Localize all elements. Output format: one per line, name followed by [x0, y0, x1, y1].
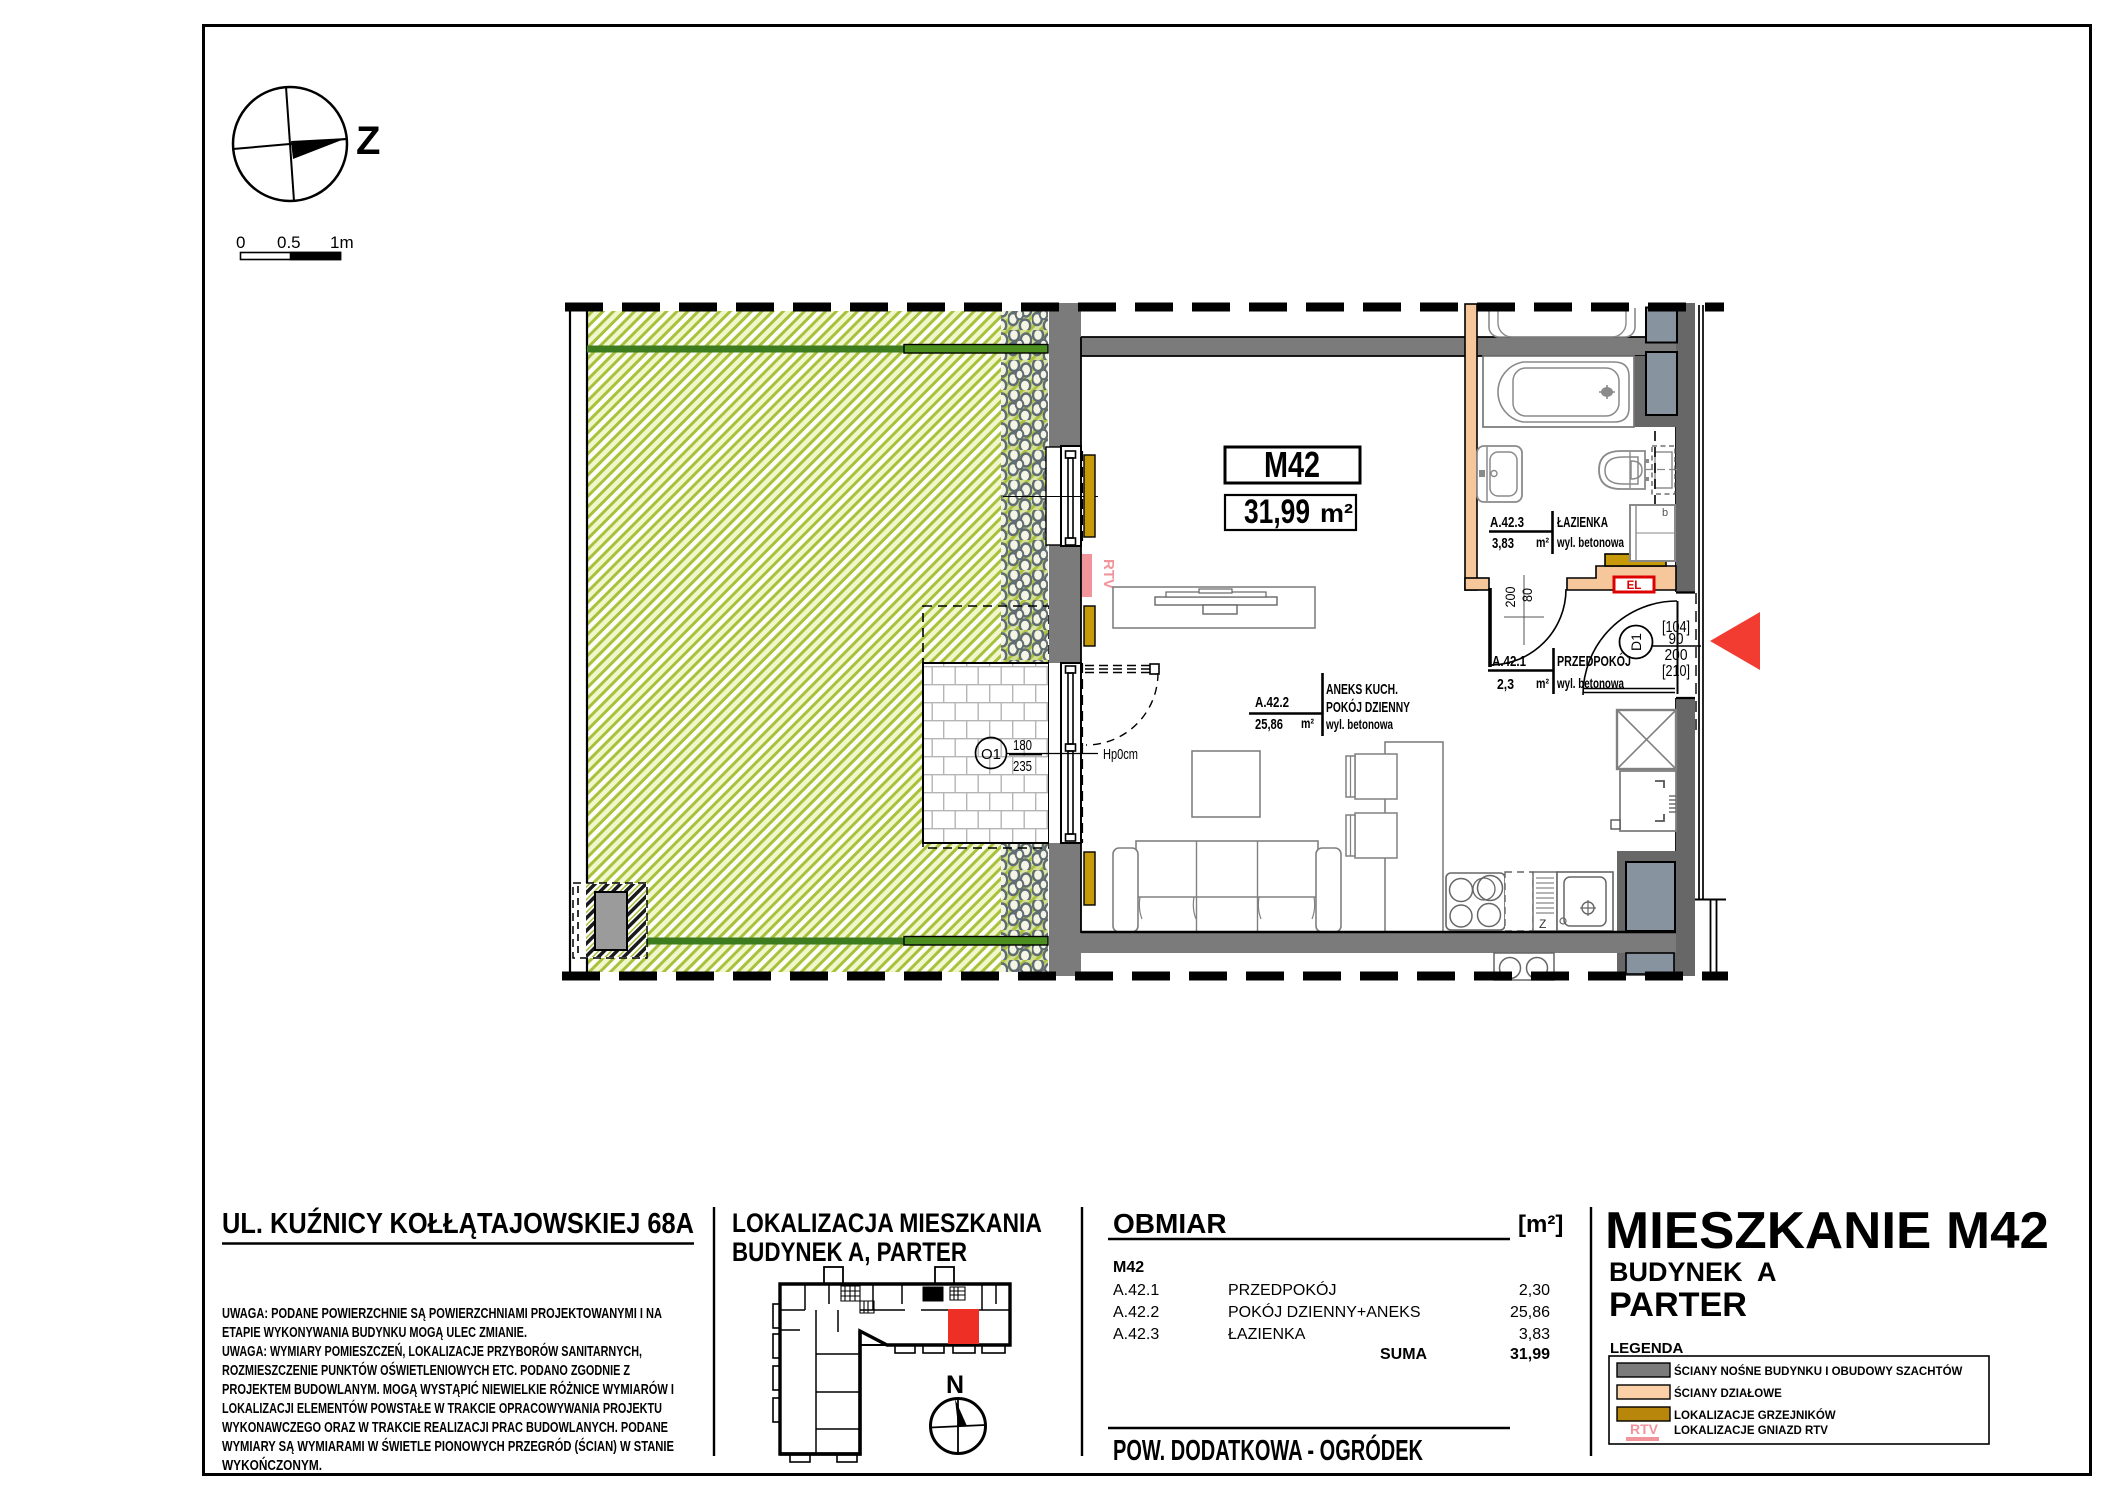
svg-text:0.5: 0.5	[277, 233, 301, 252]
svg-text:PRZEDPOKÓJ: PRZEDPOKÓJ	[1557, 652, 1631, 670]
svg-text:A.42.2: A.42.2	[1113, 1304, 1159, 1321]
svg-text:O1: O1	[981, 746, 1001, 763]
svg-text:3,83: 3,83	[1492, 535, 1514, 552]
svg-text:0: 0	[236, 233, 245, 252]
svg-text:ROZMIESZCZENIE PUNKTÓW OŚWIETL: ROZMIESZCZENIE PUNKTÓW OŚWIETLENIOWYCH E…	[222, 1361, 630, 1379]
svg-text:UL. KUŹNICY KOŁŁĄTAJOWSKIEJ 68: UL. KUŹNICY KOŁŁĄTAJOWSKIEJ 68A	[222, 1206, 694, 1240]
svg-text:wyl. betonowa: wyl. betonowa	[1556, 534, 1624, 550]
svg-text:25,86: 25,86	[1510, 1304, 1550, 1321]
svg-text:LOKALIZACJE GRZEJNIKÓW: LOKALIZACJE GRZEJNIKÓW	[1674, 1409, 1836, 1422]
svg-text:235: 235	[1013, 758, 1032, 775]
svg-text:WYKONAWCZEGO ORAZ W TRAKCIE RE: WYKONAWCZEGO ORAZ W TRAKCIE REALIZACJI P…	[222, 1420, 668, 1436]
svg-text:A.42.2: A.42.2	[1255, 694, 1289, 711]
svg-text:Z: Z	[356, 119, 380, 163]
svg-text:A.42.3: A.42.3	[1490, 514, 1524, 531]
svg-text:m²: m²	[1536, 675, 1549, 691]
svg-text:ŚCIANY NOŚNE BUDYNKU I OBUDOWY: ŚCIANY NOŚNE BUDYNKU I OBUDOWY SZACHTÓW	[1674, 1365, 1963, 1378]
svg-text:90: 90	[1669, 631, 1684, 648]
svg-text:POW. DODATKOWA - OGRÓDEK: POW. DODATKOWA - OGRÓDEK	[1113, 1433, 1423, 1467]
svg-text:m²: m²	[1301, 715, 1314, 731]
svg-text:3,83: 3,83	[1519, 1326, 1550, 1343]
svg-text:ŚCIANY DZIAŁOWE: ŚCIANY DZIAŁOWE	[1674, 1387, 1782, 1400]
svg-text:WYMIARY SĄ WYMIARAMI W ŚWIETLE: WYMIARY SĄ WYMIARAMI W ŚWIETLE PIONOWYCH…	[222, 1437, 674, 1455]
svg-text:180: 180	[1013, 737, 1032, 754]
svg-text:EL: EL	[1627, 580, 1642, 592]
svg-text:wyl. betonowa: wyl. betonowa	[1325, 716, 1393, 732]
svg-text:Z: Z	[1539, 917, 1546, 931]
svg-text:PROJEKTEM BUDOWLANYM. MOGĄ WYS: PROJEKTEM BUDOWLANYM. MOGĄ WYSTĄPIĆ NIEW…	[222, 1380, 674, 1398]
svg-text:31,99: 31,99	[1510, 1346, 1550, 1363]
svg-text:ŁAZIENKA: ŁAZIENKA	[1228, 1326, 1306, 1343]
svg-text:m²: m²	[1320, 498, 1353, 528]
svg-text:m²: m²	[1536, 534, 1549, 550]
svg-text:wyl. betonowa: wyl. betonowa	[1556, 675, 1624, 691]
svg-text:D1: D1	[1628, 633, 1644, 651]
svg-text:A: A	[1757, 1257, 1777, 1287]
svg-text:POKÓJ DZIENNY+ANEKS: POKÓJ DZIENNY+ANEKS	[1228, 1302, 1421, 1321]
svg-text:200: 200	[1665, 647, 1688, 664]
svg-text:A.42.1: A.42.1	[1492, 653, 1526, 670]
svg-text:LOKALIZACJI ELEMENTÓW POWSTAŁE: LOKALIZACJI ELEMENTÓW POWSTAŁE W TRAKCIE…	[222, 1399, 662, 1417]
svg-text:2,3: 2,3	[1497, 676, 1514, 693]
svg-text:200: 200	[1502, 586, 1518, 607]
svg-text:LOKALIZACJE GNIAZD RTV: LOKALIZACJE GNIAZD RTV	[1674, 1425, 1828, 1437]
svg-text:A.42.1: A.42.1	[1113, 1282, 1159, 1299]
svg-text:M42: M42	[1113, 1259, 1144, 1276]
svg-text:POKÓJ DZIENNY: POKÓJ DZIENNY	[1326, 698, 1410, 716]
svg-text:25,86: 25,86	[1255, 716, 1283, 733]
svg-text:31,99: 31,99	[1244, 493, 1310, 531]
svg-text:PRZEDPOKÓJ: PRZEDPOKÓJ	[1228, 1280, 1336, 1299]
svg-text:RTV: RTV	[1630, 1421, 1659, 1437]
svg-text:MIESZKANIE M42: MIESZKANIE M42	[1605, 1202, 2049, 1260]
svg-text:BUDYNEK A, PARTER: BUDYNEK A, PARTER	[732, 1237, 967, 1267]
svg-text:M42: M42	[1264, 444, 1320, 485]
svg-text:ŁAZIENKA: ŁAZIENKA	[1557, 514, 1608, 531]
svg-text:[m²]: [m²]	[1518, 1211, 1563, 1238]
svg-text:LEGENDA: LEGENDA	[1610, 1340, 1684, 1357]
svg-text:WYKOŃCZONYM.: WYKOŃCZONYM.	[222, 1457, 322, 1474]
svg-text:PARTER: PARTER	[1609, 1286, 1747, 1324]
svg-text:N: N	[946, 1371, 964, 1399]
svg-text:Hp0cm: Hp0cm	[1103, 746, 1138, 763]
svg-text:BUDYNEK: BUDYNEK	[1609, 1257, 1743, 1287]
svg-text:RTV: RTV	[1100, 559, 1117, 589]
svg-text:OBMIAR: OBMIAR	[1113, 1208, 1227, 1239]
svg-text:80: 80	[1519, 588, 1535, 602]
svg-text:[210]: [210]	[1662, 663, 1690, 680]
svg-text:UWAGA: PODANE POWIERZCHNIE SĄ: UWAGA: PODANE POWIERZCHNIE SĄ POWIERZCHN…	[222, 1306, 662, 1322]
svg-text:b: b	[1662, 507, 1668, 519]
svg-text:1m: 1m	[330, 233, 354, 252]
svg-text:SUMA: SUMA	[1380, 1346, 1428, 1363]
svg-text:ETAPIE WYKONYWANIA BUDYNKU MOG: ETAPIE WYKONYWANIA BUDYNKU MOGĄ ULEC ZMI…	[222, 1325, 527, 1341]
svg-text:ANEKS KUCH.: ANEKS KUCH.	[1326, 681, 1398, 698]
svg-text:2,30: 2,30	[1519, 1282, 1550, 1299]
svg-text:A.42.3: A.42.3	[1113, 1326, 1159, 1343]
svg-text:LOKALIZACJA MIESZKANIA: LOKALIZACJA MIESZKANIA	[732, 1208, 1042, 1238]
svg-text:UWAGA: WYMIARY POMIESZCZEŃ, LO: UWAGA: WYMIARY POMIESZCZEŃ, LOKALIZACJE …	[222, 1342, 642, 1360]
